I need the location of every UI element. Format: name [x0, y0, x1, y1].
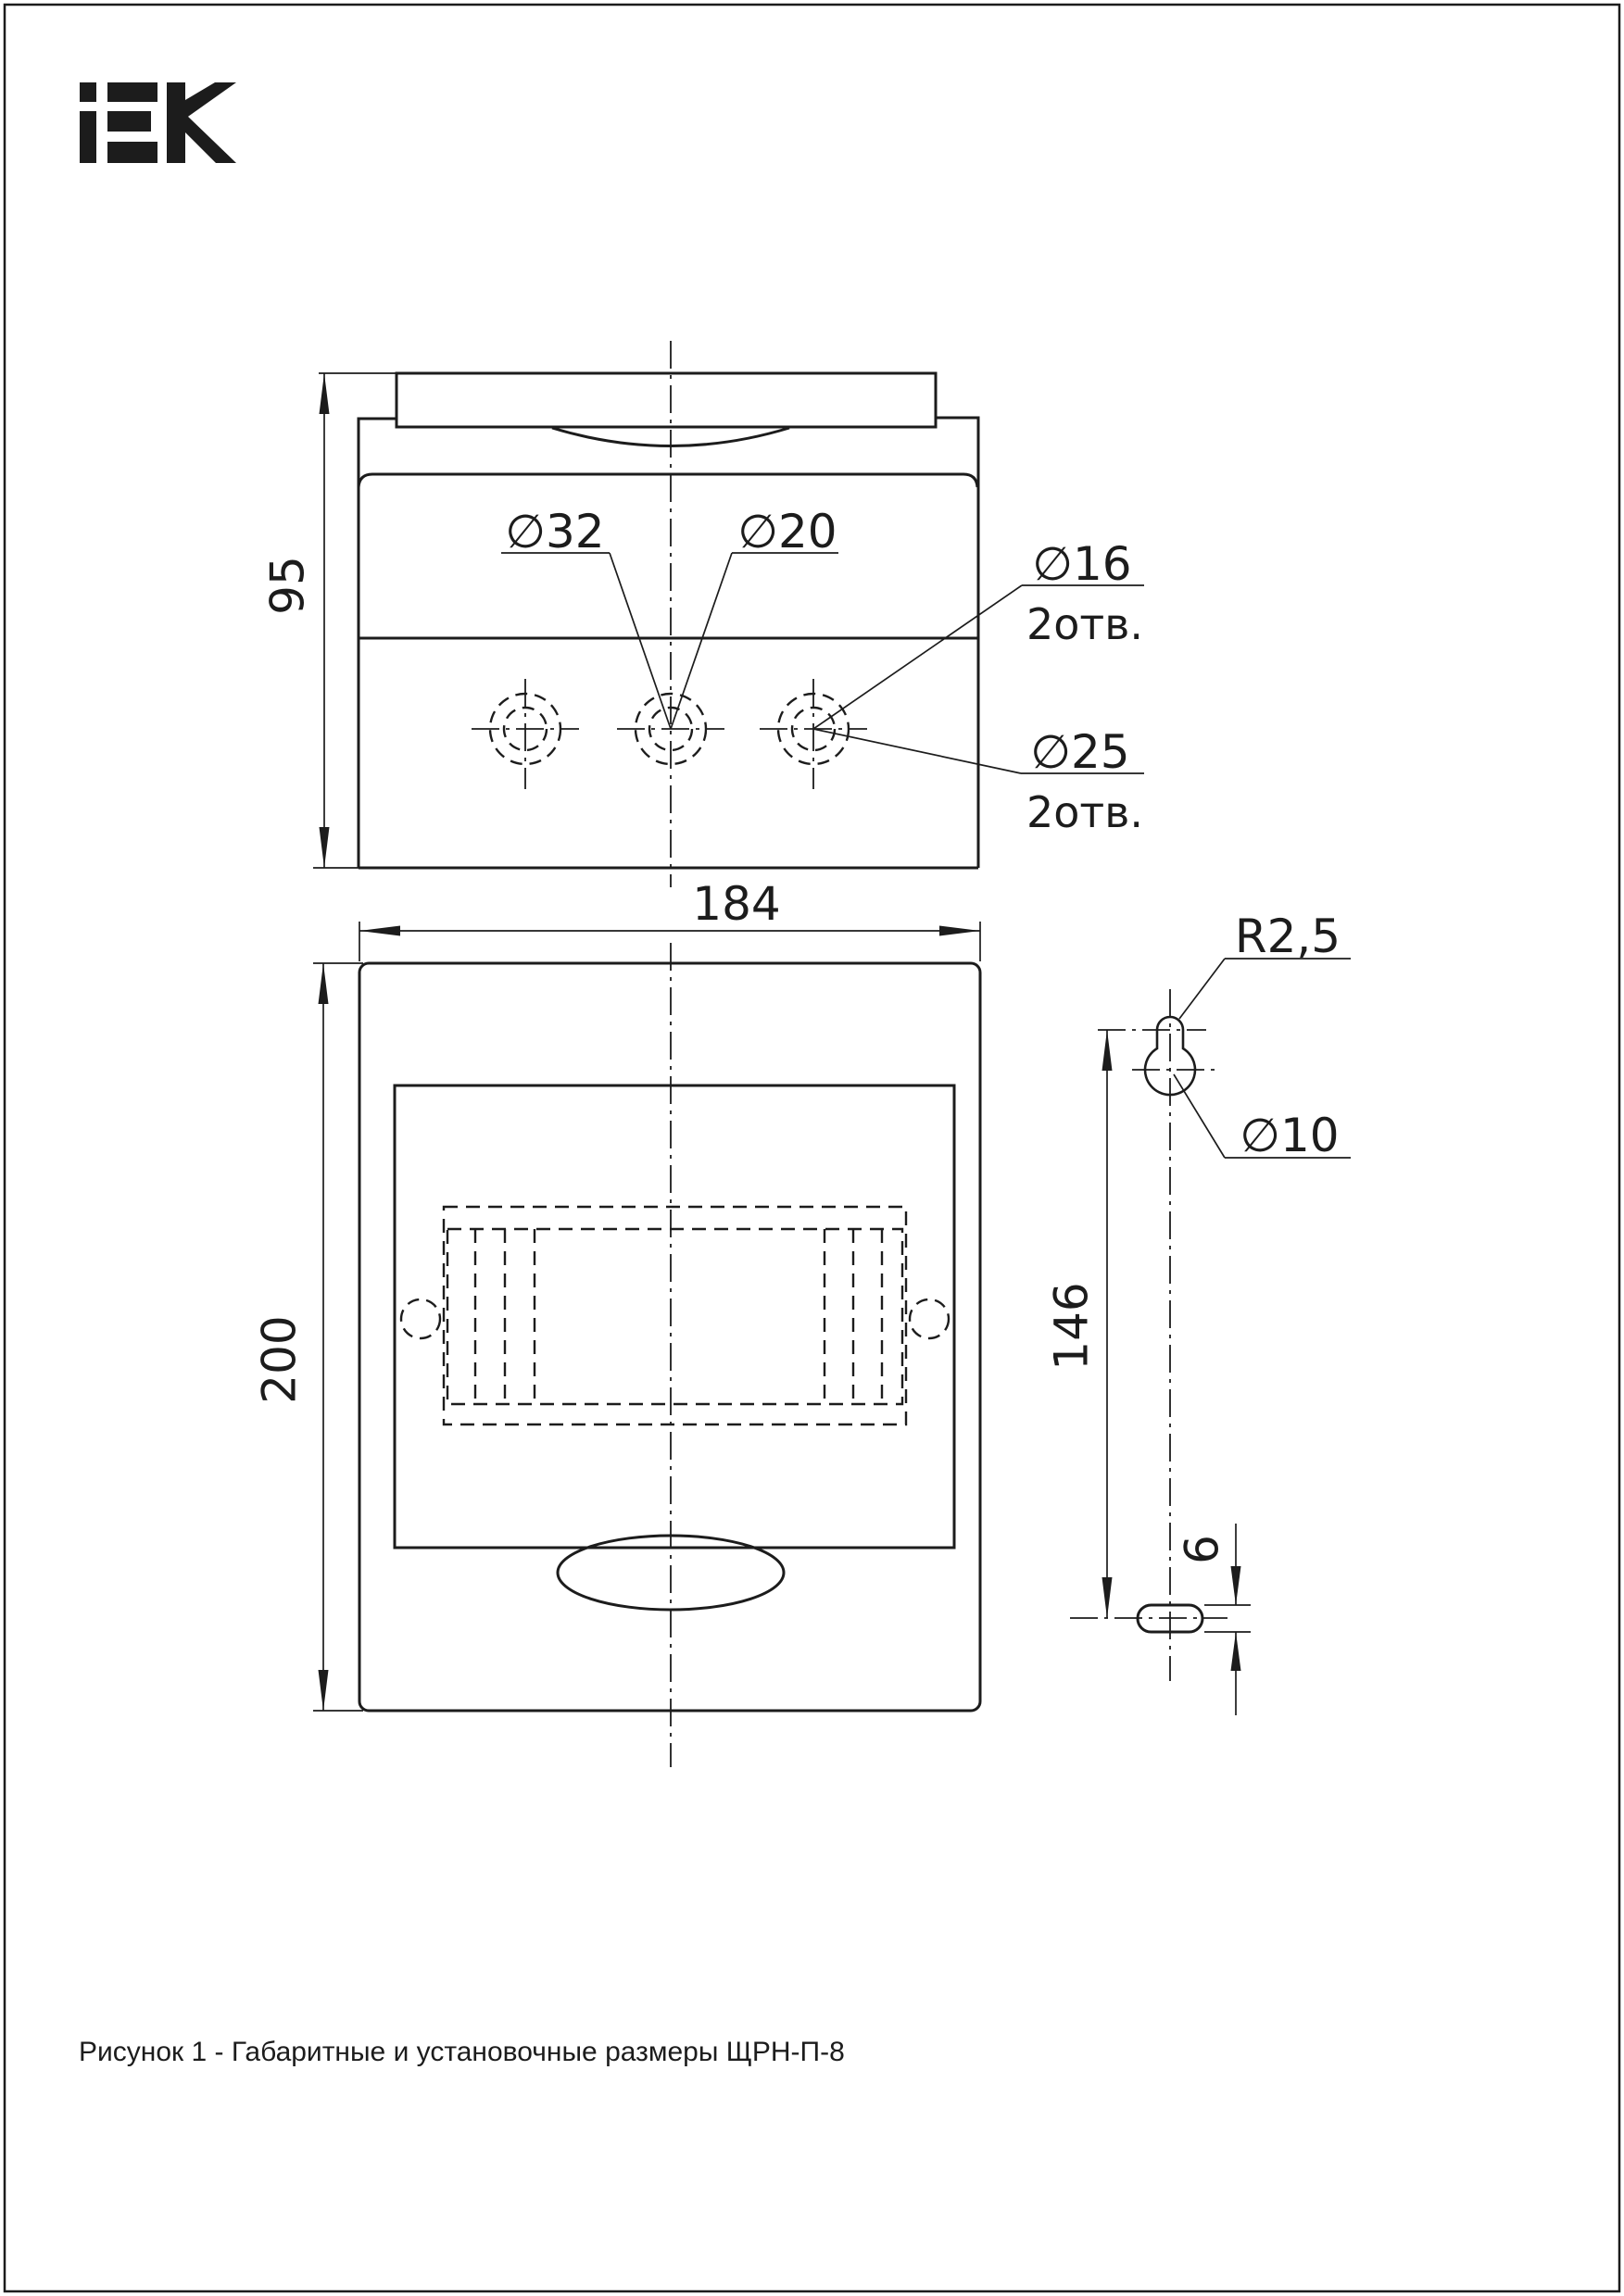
dim-slot-value: 6 [1176, 1535, 1229, 1564]
label-d10: ∅10 [1174, 1074, 1351, 1162]
top-view-lid-rail [397, 373, 936, 427]
label-d16-qty: 2отв. [1026, 599, 1143, 649]
knockout-hole-left [472, 679, 579, 789]
top-view: 95 ∅32 ∅20 ∅16 2отв. ∅25 2отв. [261, 341, 1145, 887]
dim-span-value: 146 [1045, 1282, 1099, 1370]
label-d20-text: ∅20 [737, 505, 837, 558]
datasheet-page: 95 ∅32 ∅20 ∅16 2отв. ∅25 2отв. [0, 0, 1624, 2296]
iek-logo-icon [80, 82, 236, 163]
label-d25-qty: 2отв. [1026, 787, 1143, 837]
knockout-hole-right [760, 679, 867, 789]
label-d25-text: ∅25 [1030, 725, 1129, 779]
dim-height-200: 200 [253, 963, 364, 1711]
dim-depth-value: 95 [261, 556, 315, 615]
dim-width-184: 184 [359, 877, 980, 961]
front-view-body [359, 963, 980, 1711]
page-border [5, 5, 1619, 2291]
front-view-din-rail-hidden [444, 1207, 906, 1424]
technical-drawing: 95 ∅32 ∅20 ∅16 2отв. ∅25 2отв. [0, 0, 1624, 2296]
figure-caption: Рисунок 1 - Габаритные и установочные ра… [79, 2037, 845, 2067]
front-view: 184 200 [253, 877, 981, 1767]
dim-width-value: 184 [692, 877, 780, 931]
mounting-detail: R2,5 ∅10 146 6 [1045, 910, 1352, 1715]
dim-height-value: 200 [253, 1315, 307, 1403]
dim-span-146: 146 [1045, 1030, 1113, 1618]
label-d32-text: ∅32 [505, 505, 604, 558]
front-view-screw-right [910, 1299, 949, 1338]
front-view-screw-left [401, 1299, 440, 1338]
dim-slot-6: 6 [1176, 1524, 1252, 1715]
front-view-door [395, 1085, 954, 1548]
label-d10-text: ∅10 [1240, 1109, 1339, 1162]
label-r25: R2,5 [1179, 910, 1351, 1019]
label-d16-text: ∅16 [1032, 537, 1131, 591]
label-d32: ∅32 [501, 505, 671, 729]
dim-depth-95: 95 [261, 373, 399, 868]
label-r25-text: R2,5 [1235, 910, 1341, 963]
